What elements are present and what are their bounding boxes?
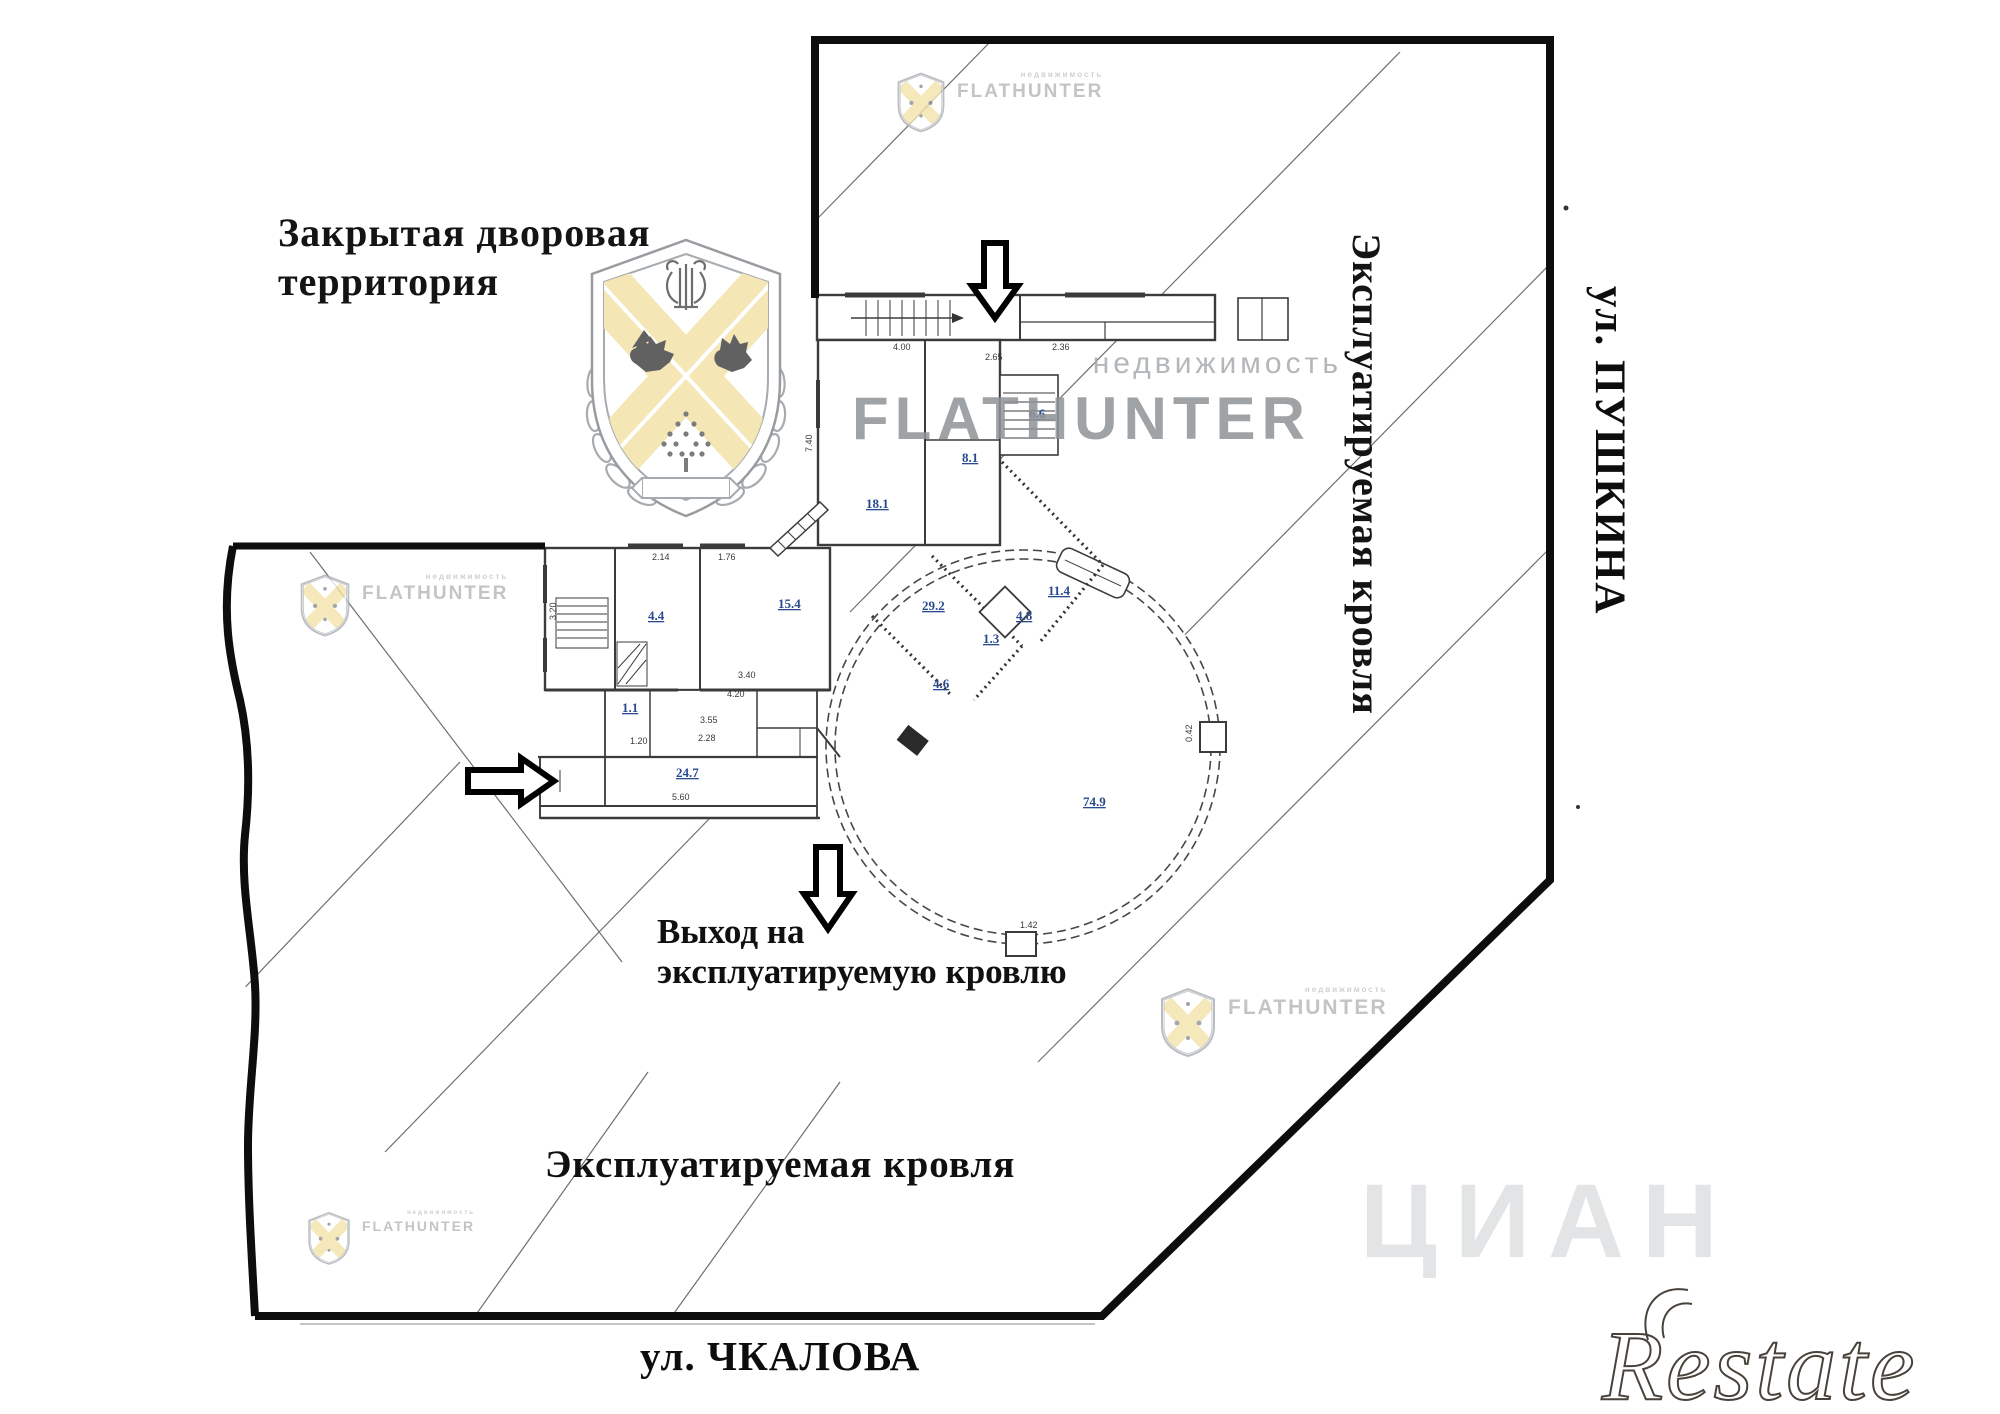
pushkina-street-label: ул. ПУШКИНА [1585, 286, 1634, 615]
watermark-subtitle: недвижимость [1305, 985, 1388, 994]
shield-icon [306, 1210, 352, 1266]
floor-plan-page: 18.18.16.629.211.41.34.84.615.44.41.124.… [0, 0, 2000, 1414]
chkalova-street-label: ул. ЧКАЛОВА [640, 1332, 920, 1380]
dimension-label: 1.76 [718, 552, 736, 562]
watermark-subtitle: недвижимость [426, 572, 509, 581]
watermark-flathunter-bottom: недвижимость FLATHUNTER [306, 1210, 475, 1266]
plot-dot [1564, 206, 1569, 211]
annex-top-right [1238, 298, 1288, 340]
dimension-label: 3.40 [738, 670, 756, 680]
shield-icon [298, 572, 352, 638]
watermark-brand: FLATHUNTER [1228, 996, 1388, 1020]
dimension-label: 4.20 [727, 689, 745, 699]
watermark-brand: FLATHUNTER [362, 1218, 475, 1234]
room-area-label: 4.6 [933, 676, 950, 691]
cian-watermark: ЦИАН [1360, 1162, 1736, 1282]
room-area-label: 29.2 [922, 598, 945, 613]
room-area-label: 15.4 [778, 596, 801, 611]
dimension-label: 0.42 [1184, 724, 1194, 742]
big-wordmark: FLATHUNTER [852, 384, 1311, 453]
room-area-label: 74.9 [1083, 794, 1106, 809]
dimension-label: 1.20 [630, 736, 648, 746]
plot-dot [1576, 805, 1580, 809]
dimension-label: 5.60 [672, 792, 690, 802]
room-area-label: 11.4 [1048, 583, 1071, 598]
shield-icon [895, 70, 947, 134]
dimension-label: 2.65 [985, 352, 1003, 362]
dimension-label: 3.20 [548, 602, 558, 620]
room-area-label: 18.1 [866, 496, 889, 511]
dimension-label: 2.14 [652, 552, 670, 562]
watermark-flathunter-left: недвижимость FLATHUNTER [298, 572, 508, 638]
room-area-label: 4.8 [1016, 608, 1033, 623]
dimension-label: 4.00 [893, 342, 911, 352]
hand-drawn-edge [227, 546, 256, 1316]
watermark-brand: FLATHUNTER [362, 583, 508, 605]
room-area-label: 1.1 [622, 700, 638, 715]
room-area-label: 4.4 [648, 608, 665, 623]
lower-rooms-block [545, 548, 830, 690]
watermark-subtitle: недвижимость [407, 1210, 475, 1216]
watermark-flathunter-top: недвижимость FLATHUNTER [895, 70, 1103, 134]
dimension-label: 2.36 [1052, 342, 1070, 352]
exploited-roof-label-right: Эксплуатируемая кровля [1343, 233, 1390, 715]
dimension-label: 7.40 [804, 434, 814, 452]
dimension-label: 2.28 [698, 733, 716, 743]
dimension-label: 3.55 [700, 715, 718, 725]
shield-icon [1158, 985, 1218, 1059]
watermark-subtitle: недвижимость [1021, 70, 1104, 79]
exploited-roof-label-bottom: Эксплуатируемая кровля [545, 1142, 1015, 1187]
room-area-label: 1.3 [983, 631, 1000, 646]
yard-territory-label: Закрытая дворовая территория [278, 208, 650, 306]
watermark-brand: FLATHUNTER [957, 81, 1103, 103]
restate-swirl-icon [1636, 1278, 1706, 1344]
roof-exit-label: Выход на эксплуатируемую кровлю [657, 912, 1067, 992]
watermark-flathunter-right: недвижимость FLATHUNTER [1158, 985, 1388, 1059]
big-wordmark-subtitle: недвижимость [1080, 347, 1342, 381]
room-area-label: 24.7 [676, 765, 699, 780]
